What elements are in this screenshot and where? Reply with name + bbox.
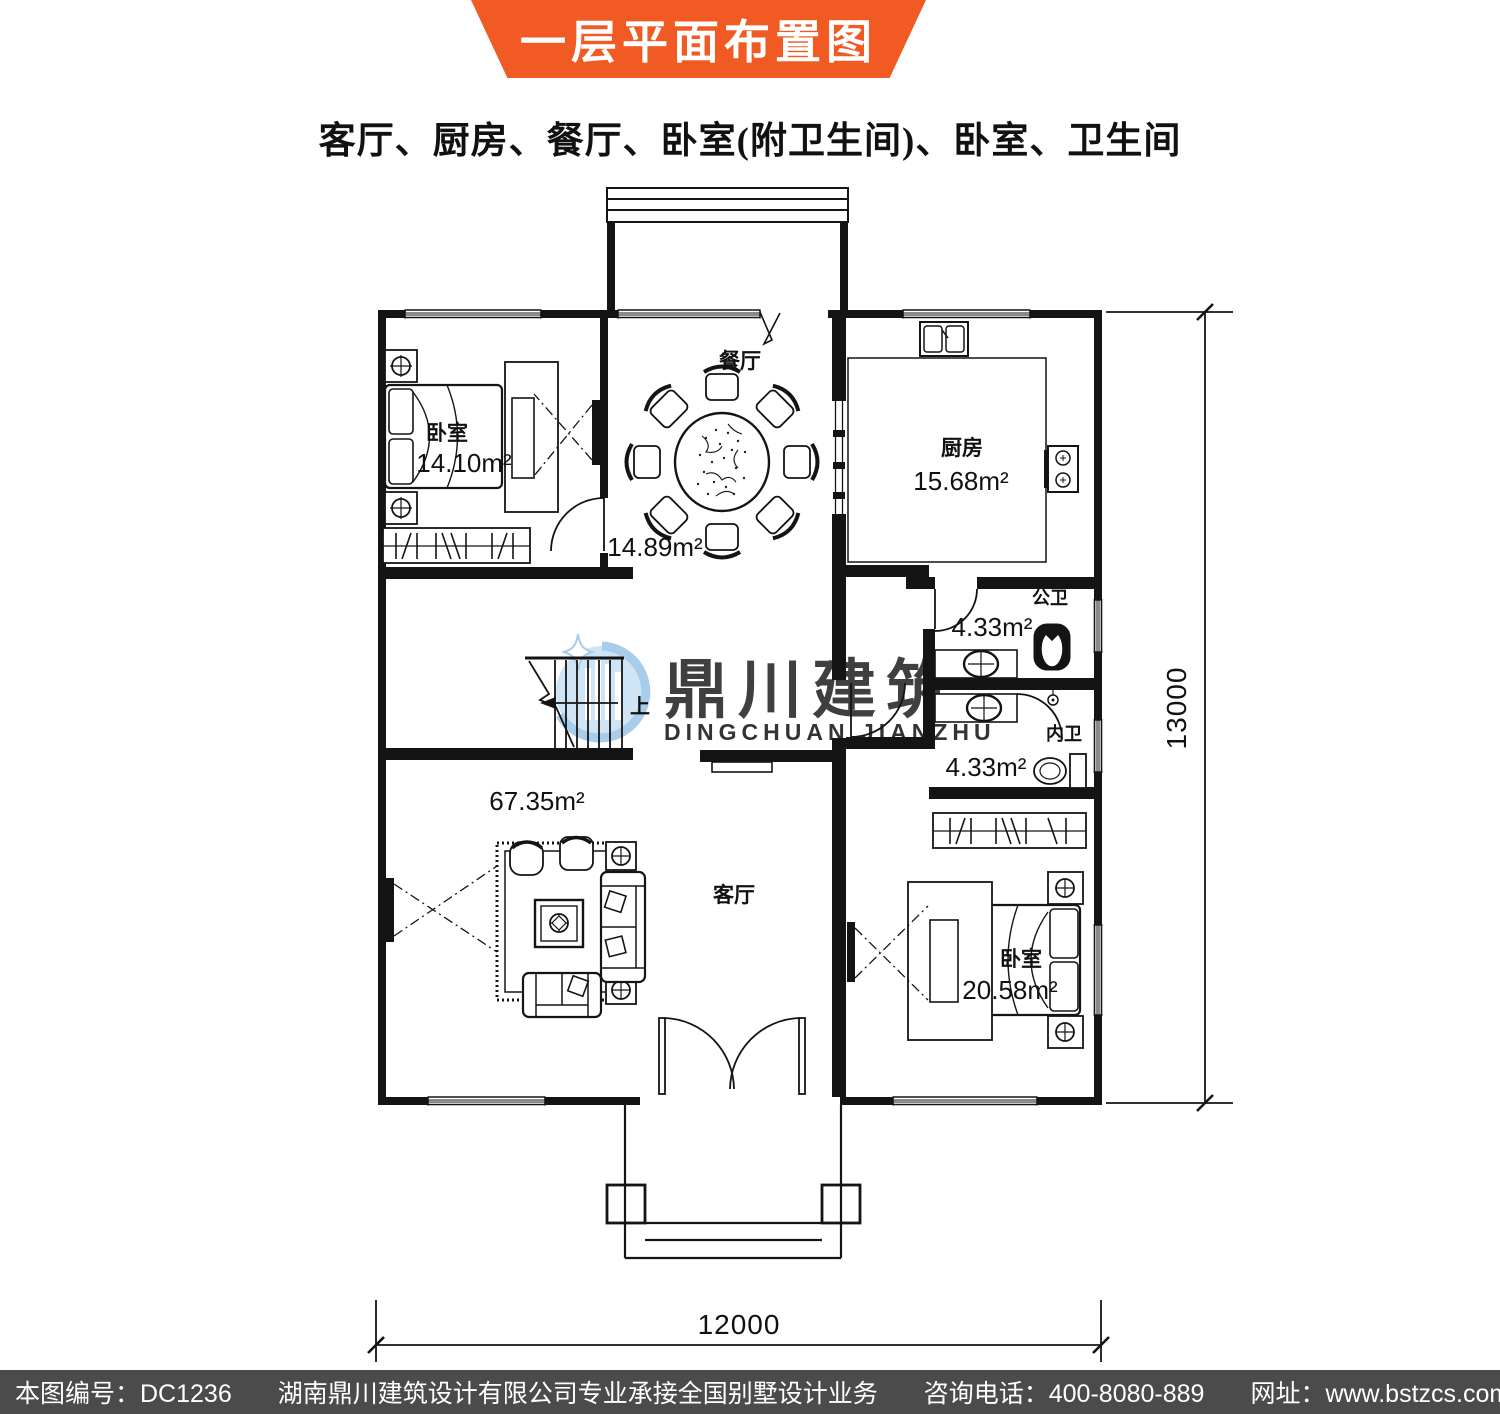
dimension-width: 12000: [698, 1309, 781, 1340]
area-label-dining: 14.89m²: [607, 532, 703, 562]
wall-tv-icon: [847, 922, 855, 982]
tv-icon: [512, 398, 534, 478]
footer-bar: 本图编号：DC1236 湖南鼎川建筑设计有限公司专业承接全国别墅设计业务 咨询电…: [0, 1370, 1500, 1414]
room-label-kitchen: 厨房: [941, 436, 983, 460]
area-label-bath-public: 4.33m²: [952, 612, 1033, 642]
watermark-cn: 鼎川建筑: [664, 654, 960, 726]
footer-company: 湖南鼎川建筑设计有限公司专业承接全国别墅设计业务: [278, 1374, 878, 1410]
entry-porch: [607, 762, 860, 1258]
footer-drawing-no: 本图编号：DC1236: [15, 1374, 232, 1410]
sofa-icon: [601, 872, 645, 982]
room-label-living: 客厅: [713, 883, 755, 907]
stair-up-label: 上: [630, 695, 650, 718]
wall-tv-icon: [592, 400, 600, 465]
loveseat-icon: [523, 973, 601, 1017]
armchair-icon: [560, 837, 593, 870]
armchair-icon: [510, 842, 543, 875]
wall-break-icon: [760, 312, 780, 344]
back-porch: [607, 188, 848, 222]
area-label-bath-private: 4.33m²: [946, 752, 1027, 782]
dimension-height: 13000: [1161, 667, 1192, 750]
tv-icon: [930, 920, 958, 1002]
page: 一层平面布置图 客厅、厨房、餐厅、卧室(附卫生间)、卧室、卫生间 鼎川建筑 DI…: [0, 0, 1500, 1414]
floor-plan: 鼎川建筑 DINGCHUAN JIANZHU: [0, 0, 1500, 1414]
room-label-bedroom1: 卧室: [426, 421, 468, 445]
living-furniture: [386, 837, 645, 1017]
wall-tv-icon: [386, 878, 394, 942]
footer-website: 网址：www.bstzcs.com: [1250, 1374, 1500, 1410]
dining-table-icon: [675, 413, 769, 511]
footer-phone: 咨询电话：400-8080-889: [924, 1374, 1205, 1410]
room-label-bath-public: 公卫: [1032, 588, 1068, 608]
room-label-bedroom2: 卧室: [1000, 947, 1042, 971]
area-label-kitchen: 15.68m²: [913, 466, 1009, 496]
area-label-living: 67.35m²: [489, 786, 585, 816]
toilet-icon: [1070, 754, 1086, 788]
watermark-en: DINGCHUAN JIANZHU: [664, 719, 996, 745]
room-label-bath-private: 内卫: [1046, 723, 1082, 744]
area-label-bedroom2: 20.58m²: [962, 975, 1058, 1005]
slider-ticks: [832, 395, 846, 520]
dining-furniture: [627, 367, 818, 558]
coffee-table-icon: [535, 900, 583, 947]
area-label-bedroom1: 14.10m²: [416, 448, 512, 478]
bedroom2-furniture: [847, 813, 1086, 1048]
room-label-dining: 餐厅: [719, 349, 761, 373]
